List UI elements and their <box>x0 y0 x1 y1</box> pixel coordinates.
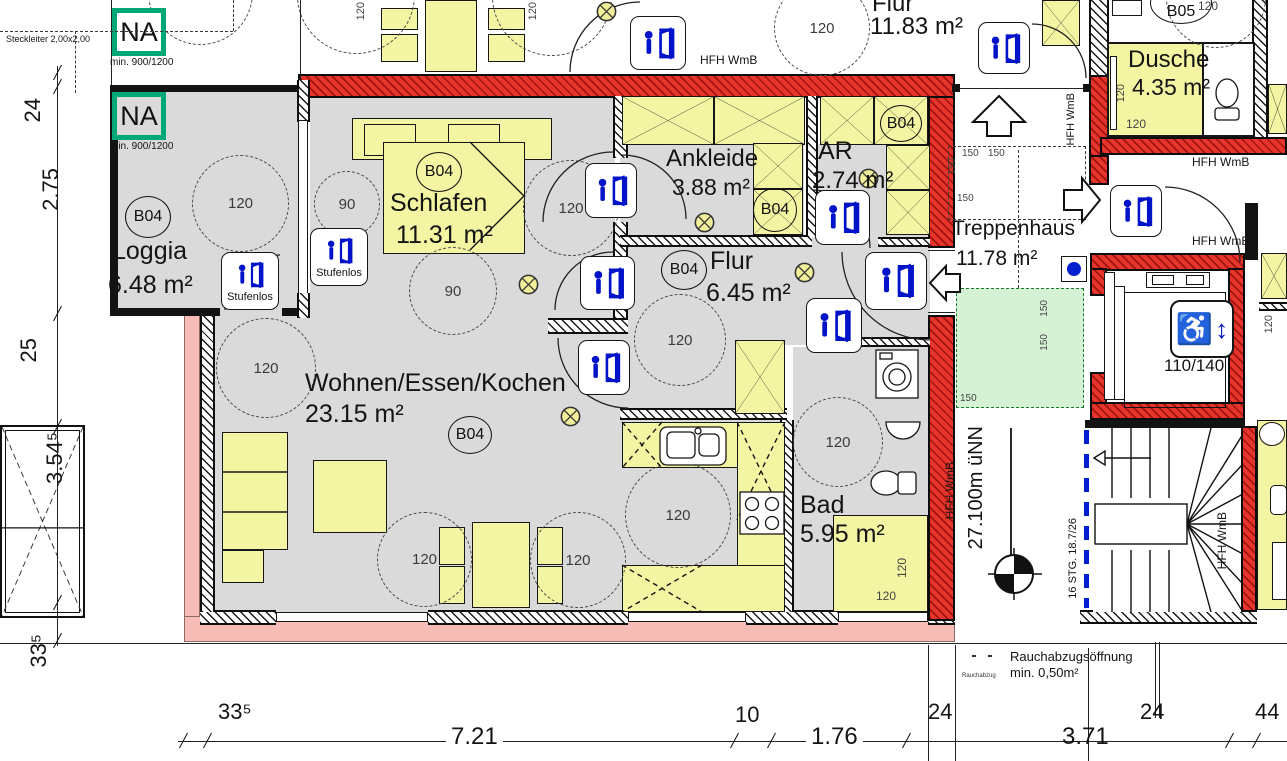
label-ar-name: AR <box>818 138 853 164</box>
level-marker <box>994 554 1034 594</box>
na-sub-2: min. 900/1200 <box>110 142 173 153</box>
dim-left-275: 2.75 <box>40 168 62 211</box>
label-schlafen-name: Schlafen <box>390 190 487 216</box>
clearance-150: 150 <box>957 194 974 205</box>
label-dusche-area: 4.35 m² <box>1132 75 1210 99</box>
label-bad-area: 5.95 m² <box>800 521 885 547</box>
clearance-150: 150 <box>948 158 958 175</box>
vent-note-small: Rauchabzug <box>962 673 996 679</box>
light-icon <box>794 262 815 283</box>
label-wohnen-name: Wohnen/Essen/Kochen <box>305 370 566 396</box>
na-label: NA <box>120 101 158 132</box>
label-flur-area: 6.45 m² <box>706 280 791 306</box>
na-box-1: NA <box>112 8 166 56</box>
na-label: NA <box>120 17 158 48</box>
code-label: B04 <box>761 201 789 219</box>
stufenlos-label: Stufenlos <box>316 268 362 280</box>
dim-bottom-721: 7.21 <box>446 724 503 749</box>
terrain-line <box>0 643 1287 644</box>
door-icon-dusche-flur <box>1110 185 1162 237</box>
light-icon <box>596 1 617 22</box>
clearance-150: 150 <box>960 394 977 405</box>
label-dusche-name: Dusche <box>1128 47 1209 72</box>
hfh-label: HFH WmB <box>1066 93 1077 146</box>
label-ar-area: 2.74 m² <box>812 168 893 193</box>
label-schlafen-area: 11.31 m² <box>396 222 493 248</box>
dim-left-354: 3.54⁵ <box>44 432 66 484</box>
dim-left-line <box>57 66 58 646</box>
dim-bottom-335: 33⁵ <box>218 700 252 723</box>
label-loggia-area: 6.48 m² <box>108 272 193 298</box>
label-flur-og-area: 11.83 m² <box>870 14 963 39</box>
dim-bottom-371: 3.71 <box>1062 724 1109 749</box>
shower-120-v: 120 <box>896 558 908 578</box>
dim-bottom-44: 44 <box>1255 700 1279 723</box>
hfh-label: HFH WmB <box>700 54 757 67</box>
code-loggia: B04 <box>125 196 171 238</box>
vent-note-line2: min. 0,50m² <box>1010 666 1079 680</box>
code-schlafen: B04 <box>416 152 462 192</box>
dim-ext-wall-b <box>955 645 956 761</box>
dusche-120-h: 120 <box>1126 118 1146 131</box>
code-label: B04 <box>425 163 453 181</box>
door-icon-stairwell-top <box>978 22 1030 74</box>
vent-note-line1: Rauchabzugsöffnung <box>1010 650 1133 664</box>
door-icon-entry <box>865 252 927 310</box>
door-icon-wohnen <box>578 340 630 395</box>
code-wohnen: B04 <box>448 416 492 454</box>
steckleiter-zone-right <box>233 0 234 31</box>
clearance-150: 150 <box>988 149 1005 160</box>
na-sub-1: min. 900/1200 <box>110 58 173 69</box>
hfh-label: HFH WmB <box>1216 512 1228 569</box>
door-icon-flur-top <box>580 256 635 310</box>
label-flur-name: Flur <box>710 248 753 274</box>
dim-bottom-24b: 24 <box>1140 700 1164 723</box>
level-label: 27.100m üNN <box>966 426 986 549</box>
code-label: B04 <box>456 426 484 444</box>
dim-left-335: 33⁵ <box>28 634 50 668</box>
vent-tick-1 <box>972 655 976 657</box>
vent-tick-2 <box>988 655 992 657</box>
door-icon-bad <box>806 298 862 353</box>
label-bad-name: Bad <box>800 492 844 518</box>
stufenlos-label: Stufenlos <box>227 292 273 304</box>
clearance-150: 150 <box>962 149 979 160</box>
dusche-120-v: 120 <box>1116 84 1127 102</box>
code-label: B04 <box>887 115 915 133</box>
door-icon-flur-og <box>630 16 686 70</box>
dim-bottom-24a: 24 <box>928 700 952 723</box>
dim-left-24: 24 <box>22 98 44 122</box>
steckleiter-zone-top <box>0 31 233 32</box>
light-icon <box>518 274 539 295</box>
misc-drawing-layer <box>0 0 1287 761</box>
dim-bottom-10: 10 <box>735 703 759 726</box>
door-icon-ar <box>815 190 870 245</box>
shower-120-h: 120 <box>876 590 896 603</box>
light-icon <box>560 406 581 427</box>
dim-bottom-176: 1.76 <box>806 724 863 749</box>
label-treppenhaus-name: Treppenhaus <box>952 218 1075 240</box>
steckleiter-label: Steckleiter 2,00x2,00 <box>6 35 90 44</box>
clearance-150: 150 <box>1040 334 1050 351</box>
code-label: B04 <box>670 261 698 279</box>
hfh-label: HFH WmB <box>1192 235 1249 248</box>
code-flur: B04 <box>661 250 707 290</box>
clearance-150: 150 <box>1040 300 1050 317</box>
code-ar: B04 <box>880 105 922 142</box>
code-label: B04 <box>134 208 162 226</box>
door-icon-schlafen <box>585 163 637 218</box>
code-label: B05 <box>1167 3 1195 21</box>
label-ankleide-area: 3.88 m² <box>672 175 750 199</box>
label-wohnen-area: 23.15 m² <box>305 401 404 427</box>
hfh-label: HFH WmB <box>944 462 956 519</box>
na-box-2: NA <box>112 92 166 140</box>
floor-plan: ♿ ↕ 110/140 120 <box>0 0 1287 761</box>
dim-left-25: 25 <box>18 338 40 362</box>
hfh-label: HFH WmB <box>1192 156 1249 169</box>
label-ankleide-name: Ankleide <box>666 146 758 171</box>
stairs-note-label: 16 STG. 18.7/26 <box>1068 518 1079 599</box>
light-icon <box>694 212 715 233</box>
label-treppenhaus-area: 11.78 m² <box>956 248 1037 270</box>
label-loggia-name: Loggia <box>112 238 187 264</box>
door-icon-loggia-stufenlos: Stufenlos <box>221 252 279 310</box>
code-ankleide: B04 <box>753 188 797 232</box>
door-icon-schlafen-stufenlos: Stufenlos <box>310 228 368 286</box>
